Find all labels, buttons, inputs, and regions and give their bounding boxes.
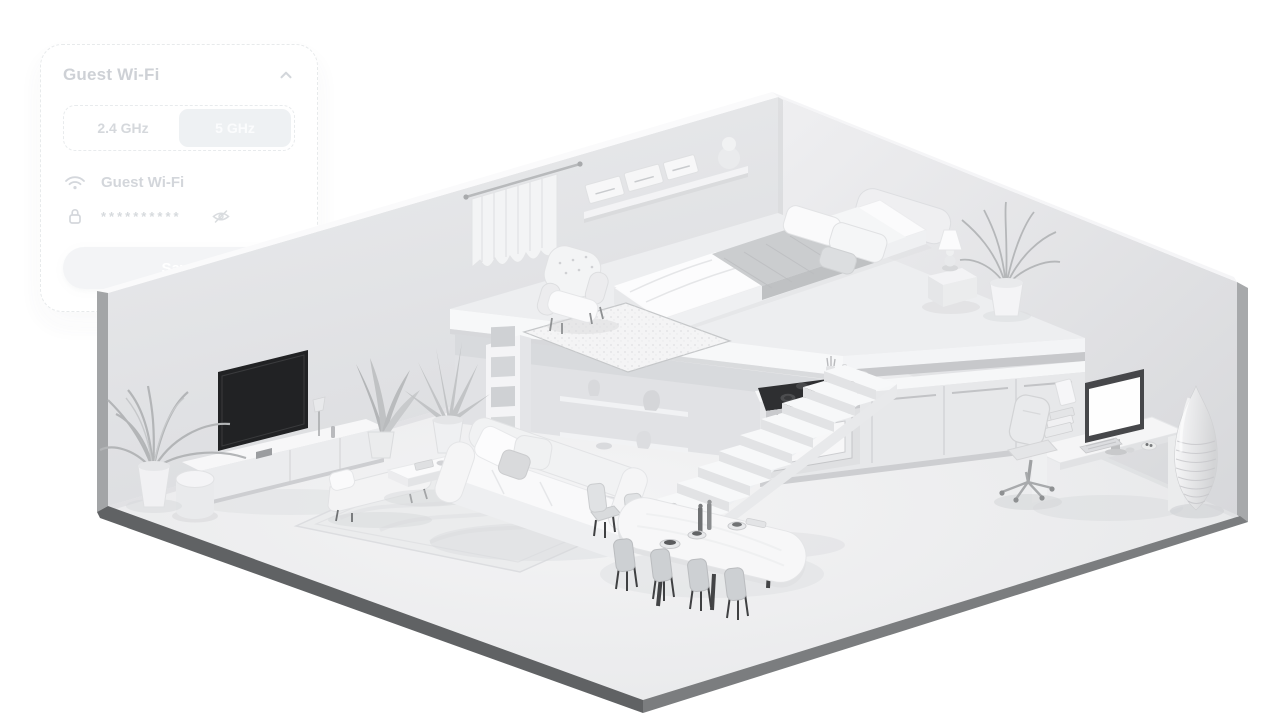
tableware (660, 500, 766, 549)
wall-left-outer-edge (97, 291, 108, 512)
desk-books (1043, 379, 1076, 438)
dining-chair (687, 558, 711, 611)
dining-chair (661, 503, 695, 558)
wall-right-rim (772, 92, 1237, 282)
table-legs (658, 552, 770, 610)
double-bed (614, 185, 954, 336)
mezzanine-floor (450, 213, 1085, 356)
dining-chair (624, 493, 658, 548)
sphere-decor (718, 147, 740, 169)
guest-wifi-card: Guest Wi-Fi 2.4 GHz 5 GHz Guest Wi-Fi **… (40, 44, 318, 312)
potted-plant-tall (404, 342, 490, 453)
sofa-with-cushions (430, 414, 651, 561)
kitchen (755, 356, 1085, 487)
wall-right-outer-edge (1237, 282, 1248, 522)
floor-lamp (313, 397, 335, 438)
save-button[interactable]: Save (63, 247, 295, 289)
stove-with-oven (758, 376, 860, 479)
dining-chair (698, 513, 732, 568)
eye-off-icon[interactable] (212, 209, 230, 224)
gray-blanket (712, 218, 874, 286)
pillow (827, 220, 889, 264)
fascia-shadow (450, 329, 843, 381)
tv (218, 350, 308, 459)
slab-edge-left (97, 506, 643, 713)
dining-chair (724, 567, 748, 620)
office-desk (1028, 417, 1184, 511)
fluffy-rug (524, 303, 730, 372)
tv-console (182, 419, 390, 515)
lock-icon (63, 207, 87, 225)
nightstand (922, 230, 980, 314)
display-shelves-vases (560, 380, 688, 454)
dining-chair (613, 538, 637, 591)
card-title: Guest Wi-Fi (63, 65, 160, 85)
tall-ribbed-floor-vase (1170, 386, 1224, 519)
baseboard-right-shadow (778, 312, 1237, 519)
password-row: ********** (63, 207, 295, 225)
counter-kick-shadow (760, 441, 1085, 487)
counter-front (760, 372, 1085, 481)
band-option-2.4ghz[interactable]: 2.4 GHz (67, 109, 179, 147)
accent-pillow (818, 245, 859, 276)
under-mezzanine-wall (455, 334, 838, 470)
staircase (614, 365, 897, 560)
chevron-up-icon[interactable] (277, 66, 295, 84)
screenshot-root: Guest Wi-Fi 2.4 GHz 5 GHz Guest Wi-Fi **… (0, 0, 1280, 720)
dining-chair (650, 548, 674, 601)
slab-edge-right (643, 516, 1248, 713)
counter-items (826, 356, 868, 378)
ssid-value[interactable]: Guest Wi-Fi (101, 174, 184, 191)
wall-shelf-with-boxes (584, 137, 748, 223)
wall-right (778, 97, 1237, 515)
kitchen-gap-shadow (843, 352, 1085, 379)
mouse (1126, 447, 1135, 452)
dining-chair (587, 483, 621, 538)
dining-table (613, 492, 812, 587)
potted-plant-mid (356, 358, 420, 458)
table-lamp (938, 230, 962, 271)
mezzanine-fascia (450, 309, 843, 376)
pillow (781, 203, 843, 247)
curtained-window (463, 161, 582, 267)
under-mezzanine-shade (455, 334, 838, 402)
monitor (1085, 369, 1144, 455)
password-masked-value[interactable]: ********** (101, 209, 182, 224)
card-header: Guest Wi-Fi (63, 65, 295, 85)
dining-set (587, 483, 824, 620)
floor (108, 312, 1240, 700)
duvet (614, 252, 764, 318)
wifi-icon (63, 173, 87, 191)
band-selector: 2.4 GHz 5 GHz (63, 105, 295, 151)
desk-bowl (1142, 442, 1157, 450)
mattress (614, 200, 926, 320)
bookshelf-cubbies (486, 326, 531, 474)
pouf (172, 471, 218, 523)
area-rug (296, 462, 664, 572)
counter-top (755, 361, 1085, 402)
kitchen-fascia (843, 338, 1085, 370)
office-nook (994, 369, 1184, 521)
mezzanine (450, 213, 1085, 470)
band-option-5ghz[interactable]: 5 GHz (179, 109, 291, 147)
keyboard (1080, 438, 1122, 453)
office-chair (994, 393, 1062, 510)
baseboard-left-shadow (108, 312, 778, 511)
bedroom-potted-palm (960, 202, 1060, 322)
tufted-armchair (535, 242, 619, 334)
potted-palm-left (100, 386, 246, 513)
ssid-row: Guest Wi-Fi (63, 173, 295, 191)
headboard (852, 185, 954, 247)
wall-corner-shade (778, 97, 783, 315)
daybed-bench (328, 465, 432, 528)
coffee-table (384, 456, 472, 507)
